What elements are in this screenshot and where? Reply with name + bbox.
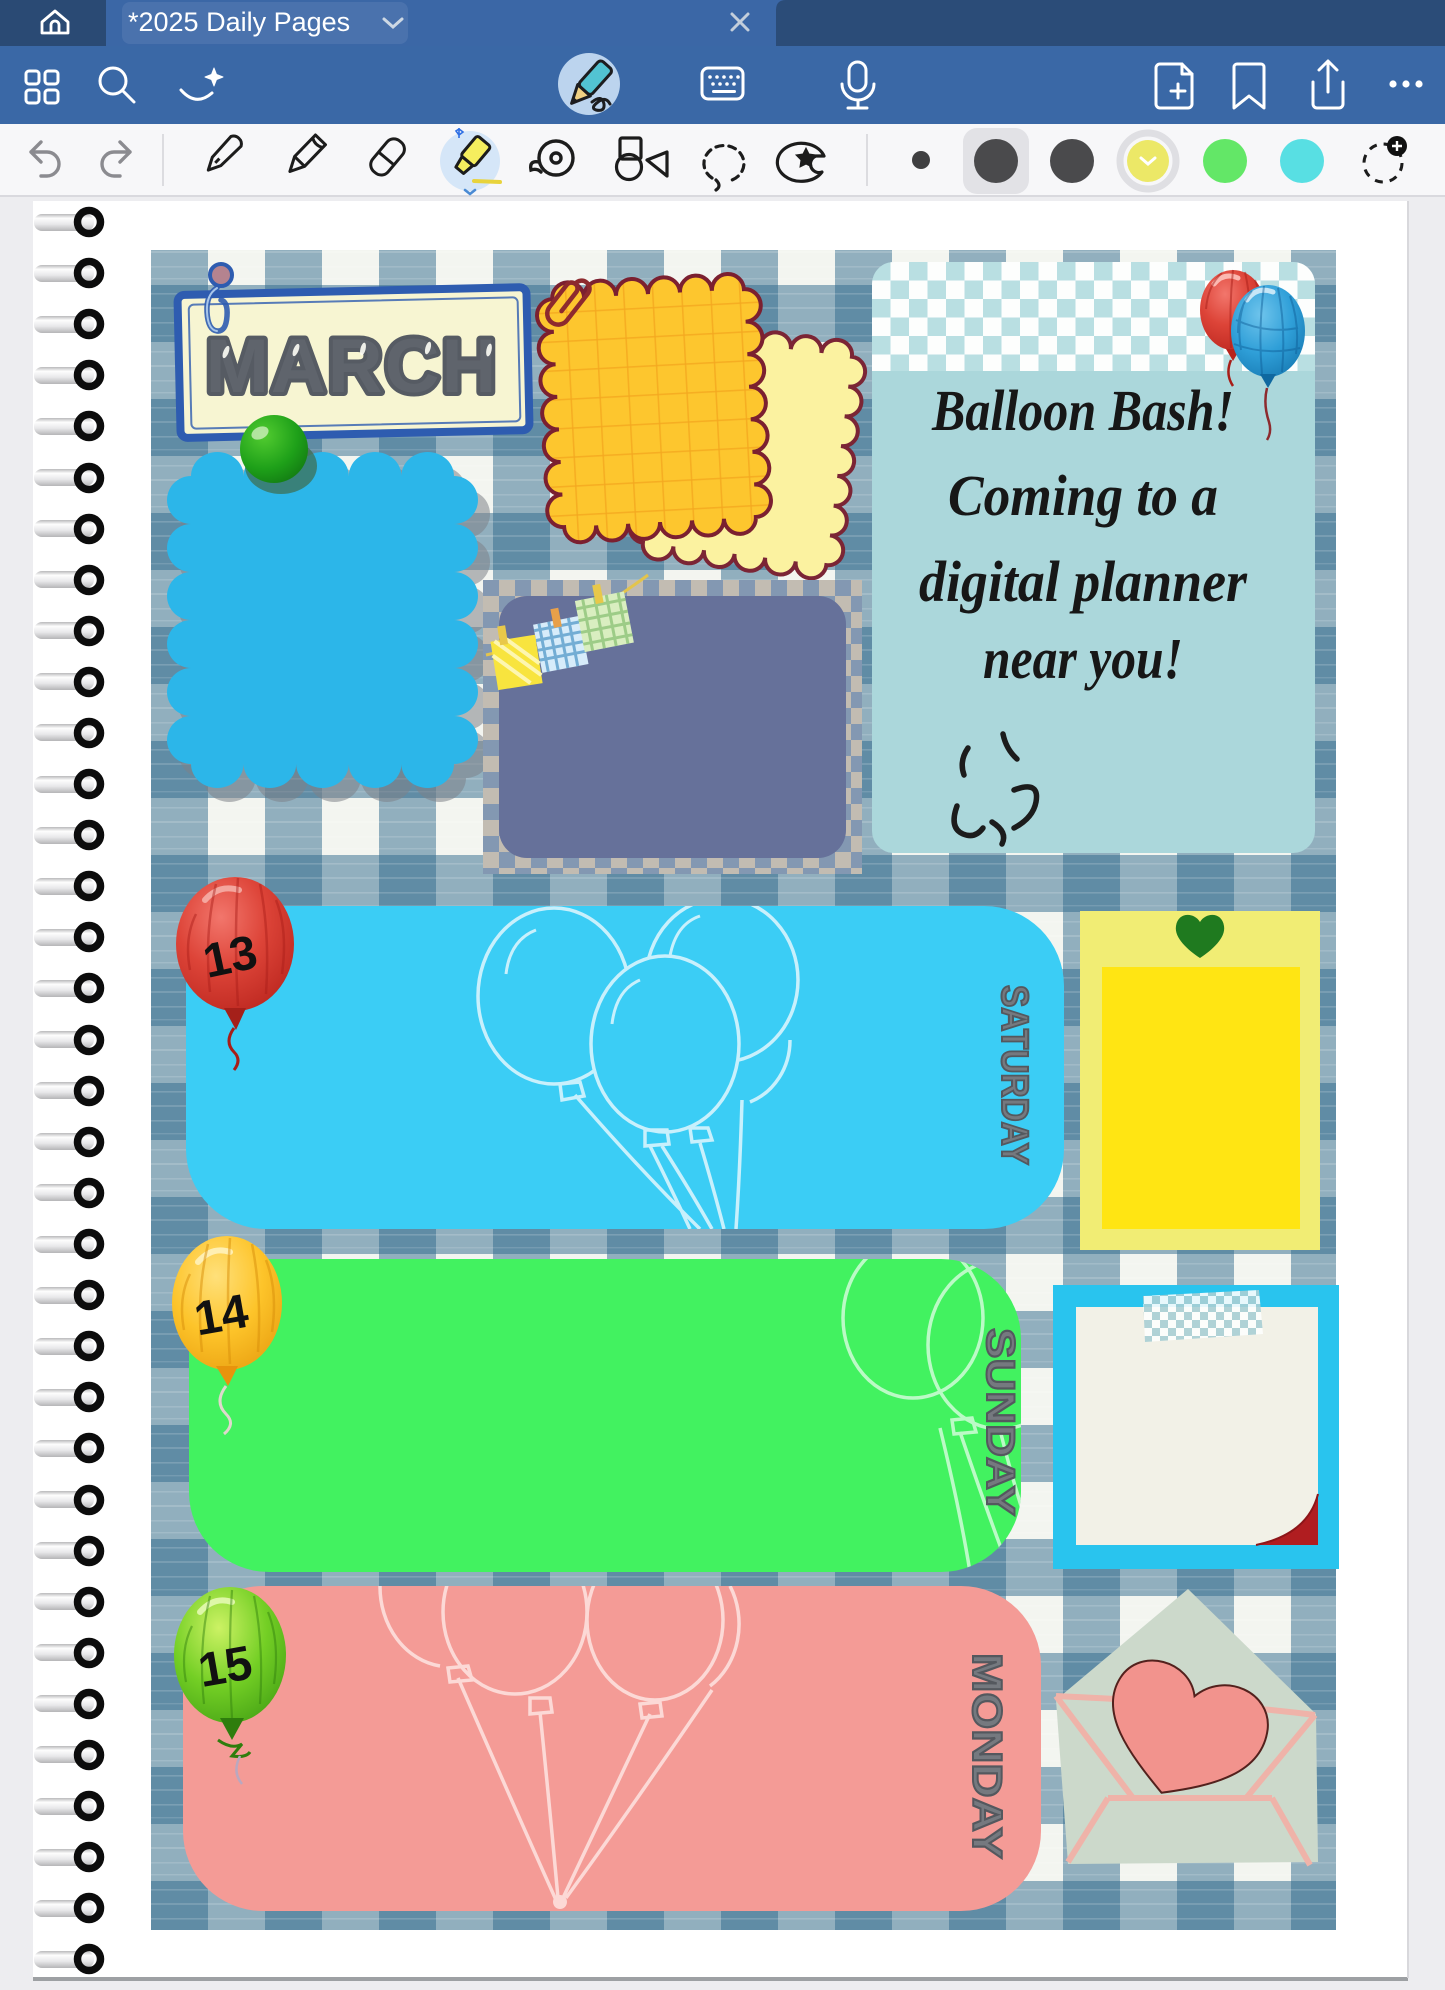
svg-text:digital planner: digital planner (919, 549, 1247, 614)
svg-text:near you!: near you! (983, 626, 1183, 691)
svg-text:MONDAY: MONDAY (964, 1653, 1011, 1859)
svg-text:14: 14 (190, 1285, 252, 1347)
svg-text:13: 13 (199, 926, 262, 989)
svg-text:Balloon Bash!: Balloon Bash! (931, 378, 1234, 443)
svg-text:MARCH: MARCH (206, 324, 499, 409)
svg-text:*2025 Daily Pages: *2025 Daily Pages (128, 7, 350, 37)
svg-text:Coming to a: Coming to a (948, 463, 1218, 528)
svg-text:15: 15 (194, 1636, 256, 1697)
svg-text:SUNDAY: SUNDAY (978, 1328, 1022, 1516)
svg-text:SATURDAY: SATURDAY (993, 985, 1035, 1165)
